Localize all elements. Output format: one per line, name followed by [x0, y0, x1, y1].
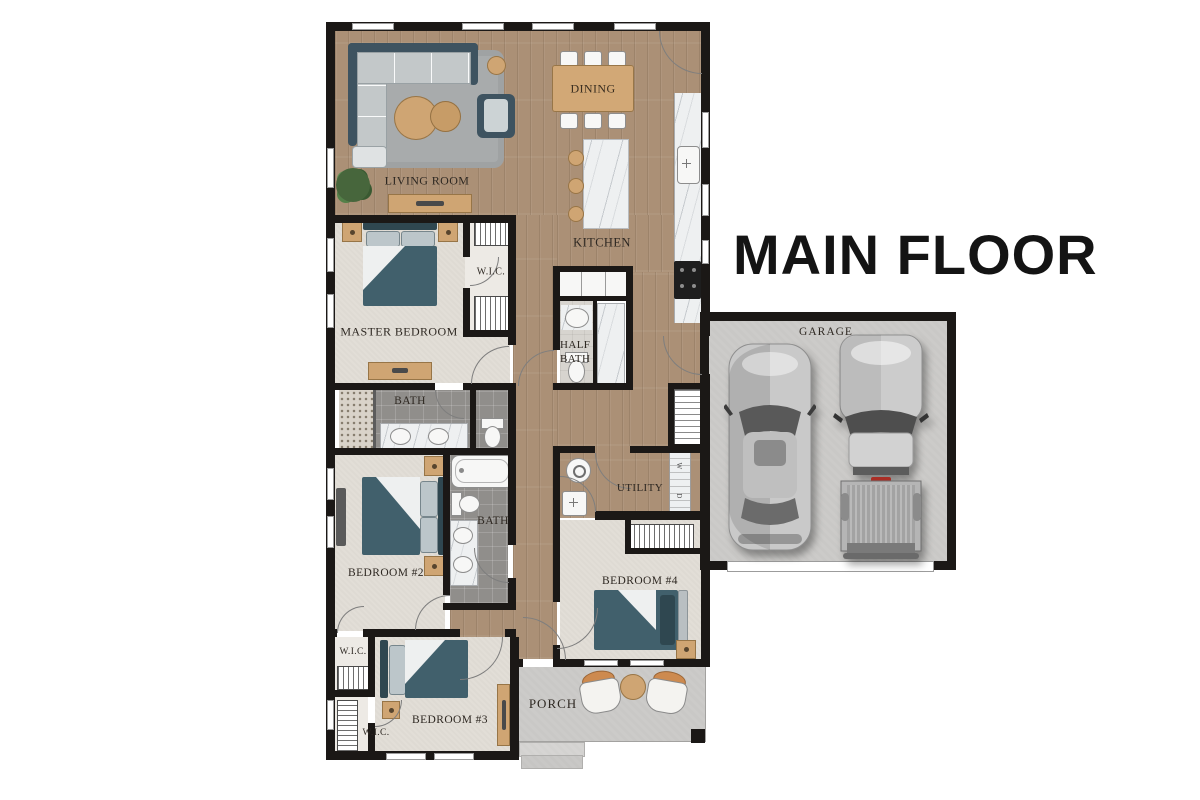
window	[327, 516, 334, 548]
porch-pillar	[691, 729, 705, 743]
window	[532, 23, 574, 30]
bathtub-faucet-icon	[459, 468, 464, 473]
sectional-sofa-back-left	[348, 43, 357, 146]
bedroom2-pillow	[420, 517, 438, 553]
side-table-round	[487, 56, 506, 75]
bedroom2-sheet-fold	[376, 477, 420, 529]
window	[462, 23, 504, 30]
porch-step-2	[521, 755, 583, 769]
dining-chair	[608, 113, 626, 129]
window	[702, 240, 709, 264]
wall	[326, 629, 337, 637]
bedroom4-bed	[594, 590, 686, 650]
room-label-bedroom4: BEDROOM #4	[602, 575, 678, 587]
wall	[668, 383, 674, 450]
window	[702, 184, 709, 216]
room-label-kitchen: KITCHEN	[573, 236, 631, 251]
bedroom2-pillow	[420, 481, 438, 517]
washer-drum	[573, 465, 586, 478]
window	[327, 294, 334, 328]
wall	[505, 629, 516, 637]
sectional-sofa-cushions-top	[357, 52, 471, 84]
porch-chair	[577, 668, 622, 716]
floor-hall-below-halfbath	[557, 390, 629, 446]
master-wic-rail	[474, 219, 510, 246]
window	[327, 148, 334, 188]
wall	[626, 266, 633, 390]
vanity-sink	[453, 556, 473, 573]
pantry-shelves	[674, 389, 702, 446]
kitchen-faucet-icon	[682, 163, 691, 164]
wall	[508, 390, 516, 545]
wic-lower-rail	[337, 700, 358, 752]
stove-cooktop	[674, 261, 701, 299]
wall	[701, 22, 710, 336]
wall	[553, 511, 560, 520]
wall	[368, 637, 375, 697]
window	[327, 238, 334, 272]
master-bed-sheet-fold	[363, 246, 405, 290]
wall	[363, 629, 460, 637]
dining-chair	[584, 113, 602, 129]
bedroom2-dresser	[336, 488, 346, 546]
sectional-sofa-back-top	[348, 43, 478, 52]
sectional-sofa-cushions-left	[357, 83, 387, 148]
wall	[553, 266, 633, 272]
pickup-truck-top-view	[833, 331, 929, 563]
window	[352, 23, 394, 30]
stove-burner-dots	[680, 268, 684, 272]
island-stool	[568, 178, 584, 194]
wall	[443, 448, 450, 595]
halfbath-sink	[565, 308, 589, 328]
window	[614, 23, 656, 30]
coffee-table-small	[430, 101, 461, 132]
wall	[326, 383, 435, 390]
master-bed-headboard	[363, 222, 437, 230]
wall	[326, 215, 516, 223]
toilet-bowl	[484, 426, 501, 448]
window	[630, 660, 664, 666]
vanity-sink	[428, 428, 449, 445]
garage-wall	[947, 312, 956, 570]
floor-plan-canvas: W D	[0, 0, 1200, 800]
wic-upper-rail	[337, 666, 370, 690]
wall	[625, 548, 701, 554]
toilet-bowl	[459, 495, 480, 513]
porch-side-table	[620, 674, 646, 700]
wall	[463, 383, 516, 390]
wall	[553, 383, 633, 390]
island-stool	[568, 206, 584, 222]
window	[327, 468, 334, 500]
wall	[326, 22, 335, 760]
floor-hallway	[513, 215, 557, 659]
master-dresser-handle	[392, 368, 408, 373]
wall	[508, 215, 516, 345]
nightstand-knob	[350, 230, 355, 235]
room-label-half-bath: HALF BATH	[560, 338, 602, 367]
bedroom3-headboard	[380, 640, 388, 698]
window	[702, 112, 709, 148]
vanity-sink	[453, 527, 473, 544]
room-label-utility: UTILITY	[617, 482, 663, 494]
room-label-dining: DINING	[570, 82, 615, 97]
room-label-garage: GARAGE	[799, 326, 853, 338]
master-wic-rail	[474, 296, 510, 331]
window	[434, 753, 474, 760]
bedroom4-pillow	[660, 595, 675, 645]
bedroom4-sheet-fold	[618, 590, 656, 630]
window	[584, 660, 618, 666]
kitchen-island	[583, 139, 629, 229]
room-label-porch: PORCH	[529, 696, 577, 712]
wall	[443, 603, 516, 610]
sofa-chaise	[352, 146, 387, 168]
garage-wall	[700, 312, 956, 321]
porch-chair	[644, 668, 689, 716]
plan-title: MAIN FLOOR	[733, 222, 1098, 287]
master-bed-pillow	[366, 231, 400, 247]
wall	[470, 390, 476, 448]
wall	[668, 444, 701, 450]
washer-letter: W	[675, 462, 683, 469]
master-bed	[363, 222, 437, 306]
wall	[463, 215, 470, 257]
room-label-master-bedroom: MASTER BEDROOM	[340, 325, 457, 340]
porch-chair-seat	[644, 677, 689, 716]
room-label-master-wic: W.I.C.	[477, 267, 505, 278]
wall	[553, 446, 560, 602]
island-stool	[568, 150, 584, 166]
nightstand-knob	[684, 647, 689, 652]
wall	[625, 518, 631, 548]
bedroom2-bed	[362, 477, 446, 555]
shower	[339, 390, 373, 448]
wall	[595, 511, 701, 520]
vanity-sink	[390, 428, 411, 445]
room-label-wic-upper: W.I.C.	[339, 647, 366, 657]
room-label-living-room: LIVING ROOM	[385, 174, 470, 189]
media-console-handle	[416, 201, 444, 206]
bedroom3-bed	[380, 640, 468, 698]
window	[386, 753, 426, 760]
nightstand-knob	[432, 564, 437, 569]
wall	[510, 637, 519, 760]
armchair-cushion	[484, 99, 508, 132]
bedroom3-pillow	[389, 645, 406, 695]
porch-chair-seat	[578, 677, 623, 716]
kitchen-sink	[677, 146, 700, 184]
sedan-top-view	[724, 338, 816, 556]
dryer-letter: D	[675, 493, 683, 498]
room-label-wic-lower: W.I.C.	[362, 728, 389, 738]
room-label-bedroom2: BEDROOM #2	[348, 567, 424, 579]
room-label-master-bath: BATH	[394, 395, 426, 407]
room-label-bath2: BATH	[477, 515, 509, 527]
bedroom3-sheet-fold	[405, 640, 445, 684]
wall	[326, 690, 375, 697]
nightstand-knob	[432, 464, 437, 469]
bedroom4-closet-rail	[628, 524, 694, 551]
window	[327, 700, 334, 730]
master-bed-pillow	[401, 231, 435, 247]
wall	[553, 296, 633, 301]
shower-glass-partition	[373, 390, 376, 448]
nightstand-knob	[446, 230, 451, 235]
wall	[326, 448, 516, 455]
bedroom3-dresser-handle	[502, 700, 506, 730]
dining-chair	[560, 113, 578, 129]
wall	[553, 266, 560, 350]
wall	[668, 383, 701, 389]
room-label-bedroom3: BEDROOM #3	[412, 714, 488, 726]
potted-plant	[336, 168, 370, 202]
